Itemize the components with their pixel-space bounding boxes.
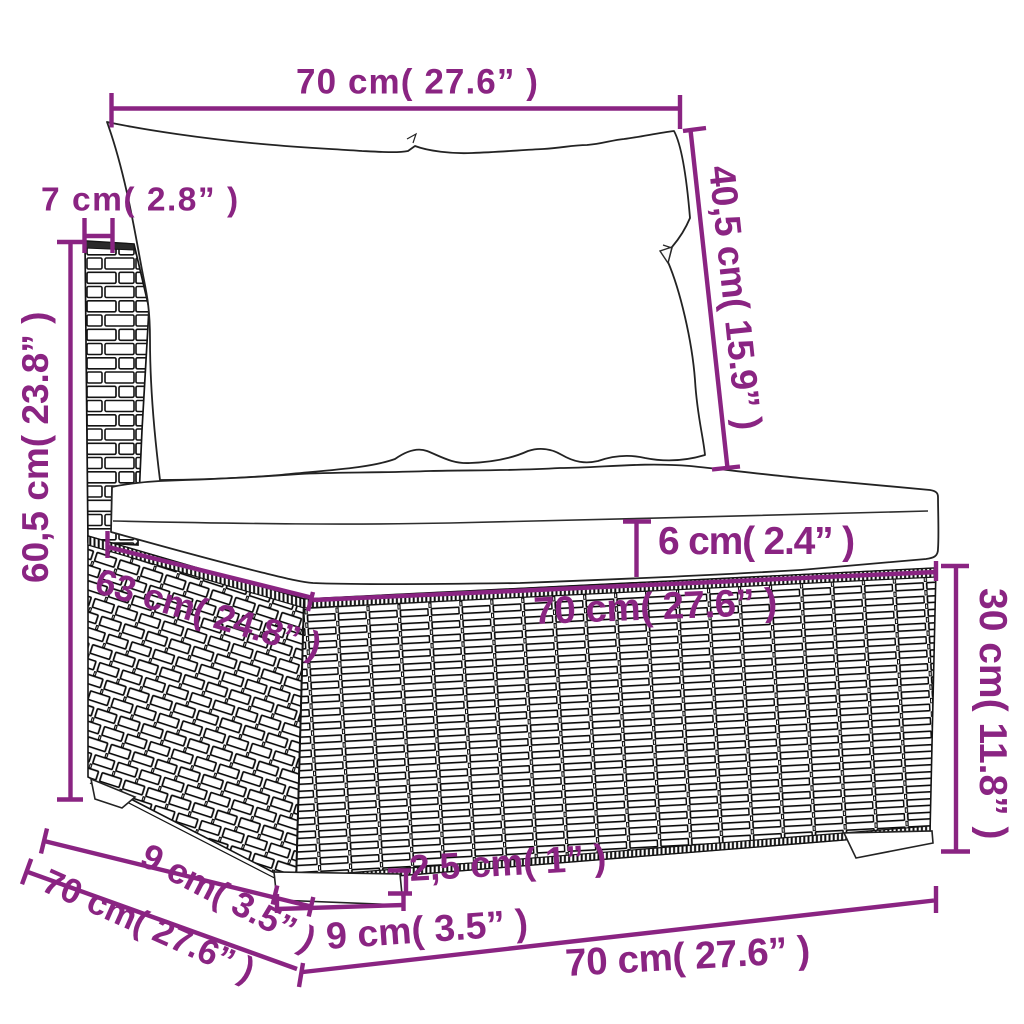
svg-text:30 cm( 11.8” ): 30 cm( 11.8” ) (971, 588, 1014, 839)
svg-text:7 cm( 2.8” ): 7 cm( 2.8” ) (41, 182, 240, 219)
svg-text:60,5 cm( 23.8” ): 60,5 cm( 23.8” ) (15, 312, 56, 583)
svg-text:6 cm( 2.4” ): 6 cm( 2.4” ) (658, 520, 854, 563)
svg-text:70 cm( 27.6” ): 70 cm( 27.6” ) (296, 63, 539, 102)
